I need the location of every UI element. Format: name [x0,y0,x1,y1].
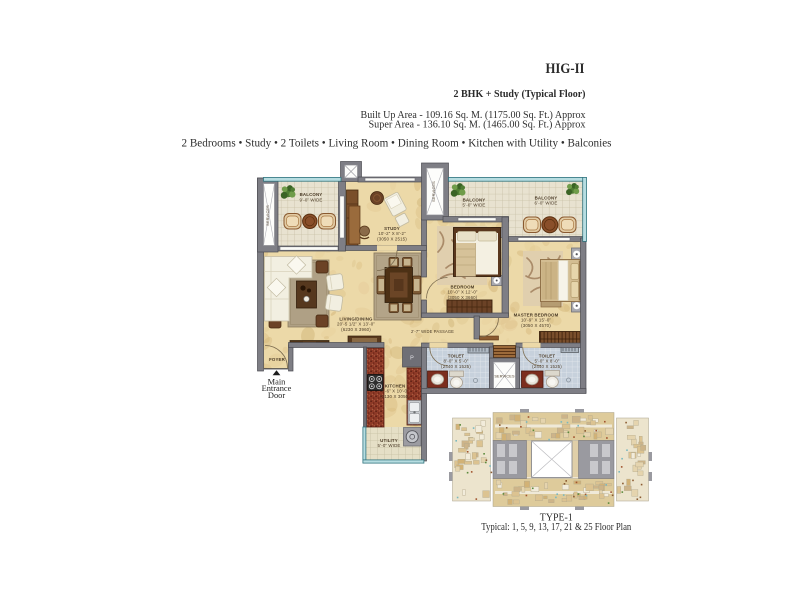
svg-text:P: P [410,356,414,362]
svg-text:6’-0” WIDE: 6’-0” WIDE [535,201,558,206]
svg-text:Super Area - 136.10 Sq. M. (14: Super Area - 136.10 Sq. M. (1465.00 Sq. … [369,120,586,131]
svg-text:(3050 X 3660): (3050 X 3660) [448,295,478,300]
svg-text:Typical: 1, 5, 9, 13, 17, 21 &: Typical: 1, 5, 9, 13, 17, 21 & 25 Floor … [481,522,631,533]
svg-text:5’-0” WIDE: 5’-0” WIDE [378,443,401,448]
svg-text:2’-7” WIDE PASSAGE: 2’-7” WIDE PASSAGE [411,329,454,334]
svg-text:2 BHK + Study (Typical Floor): 2 BHK + Study (Typical Floor) [454,89,586,100]
svg-text:(2440 X 1525): (2440 X 1525) [532,364,562,369]
svg-text:(2440 X 1525): (2440 X 1525) [441,364,471,369]
svg-text:9’-0” WIDE: 9’-0” WIDE [300,197,323,202]
svg-text:Door: Door [268,391,285,400]
svg-text:(3050 X 4570): (3050 X 4570) [521,323,551,328]
svg-text:FOYER: FOYER [269,357,286,362]
svg-text:SERVICES: SERVICES [494,375,515,379]
svg-text:(2130 X 3050): (2130 X 3050) [380,394,410,399]
svg-text:(6230 X 3960): (6230 X 3960) [341,327,371,332]
svg-text:HIG-II: HIG-II [546,61,585,77]
svg-text:(3050 X 2515): (3050 X 2515) [377,236,407,241]
svg-text:SERVICES: SERVICES [265,205,270,226]
svg-text:2 Bedrooms • Study • 2 Toilets: 2 Bedrooms • Study • 2 Toilets • Living … [182,138,613,150]
svg-text:SERVICES: SERVICES [431,181,436,202]
svg-text:5’-0” WIDE: 5’-0” WIDE [463,203,486,208]
